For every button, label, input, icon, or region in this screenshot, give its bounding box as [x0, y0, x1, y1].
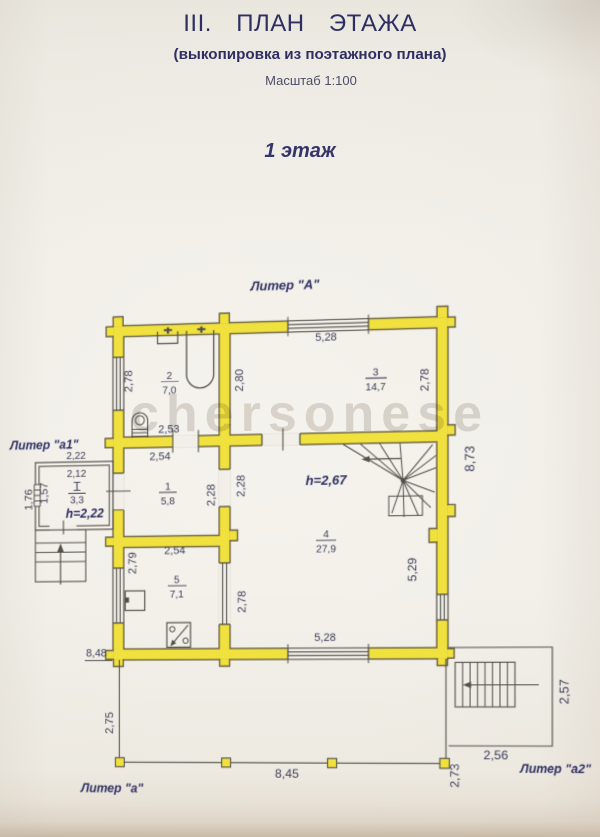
svg-text:5,28: 5,28	[315, 331, 337, 344]
svg-text:2,75: 2,75	[104, 712, 116, 734]
svg-text:8,73: 8,73	[463, 446, 478, 472]
svg-text:2,54: 2,54	[164, 545, 185, 558]
svg-text:2,79: 2,79	[127, 552, 139, 574]
svg-text:1,76: 1,76	[23, 489, 35, 510]
svg-text:2,28: 2,28	[235, 475, 247, 497]
svg-text:h=2,67: h=2,67	[306, 473, 348, 488]
svg-text:h=2,22: h=2,22	[66, 506, 104, 521]
svg-text:5,8: 5,8	[161, 496, 175, 508]
svg-text:8,45: 8,45	[275, 766, 299, 781]
svg-text:1,57: 1,57	[39, 483, 51, 504]
svg-text:2: 2	[166, 371, 172, 382]
svg-text:2,22: 2,22	[66, 451, 86, 463]
svg-text:2,57: 2,57	[557, 679, 572, 704]
svg-text:5,28: 5,28	[314, 632, 336, 645]
svg-text:27,9: 27,9	[316, 544, 337, 556]
svg-text:2,12: 2,12	[67, 469, 87, 481]
svg-text:8,48: 8,48	[86, 647, 107, 659]
svg-text:3,3: 3,3	[70, 495, 84, 506]
svg-text:2,78: 2,78	[236, 591, 248, 613]
svg-text:2,54: 2,54	[149, 450, 170, 463]
svg-text:Литер "А": Литер "А"	[250, 277, 321, 294]
svg-text:2,73: 2,73	[448, 764, 462, 788]
svg-text:Литер "а2": Литер "а2"	[519, 762, 591, 776]
svg-text:5: 5	[174, 575, 180, 586]
svg-text:1: 1	[165, 481, 171, 492]
svg-text:2,56: 2,56	[484, 748, 509, 763]
svg-text:Литер "а": Литер "а"	[80, 781, 144, 796]
svg-text:4: 4	[323, 529, 329, 541]
svg-text:5,29: 5,29	[406, 558, 420, 582]
svg-text:7,1: 7,1	[170, 589, 185, 600]
svg-text:3: 3	[373, 367, 379, 379]
svg-text:2,28: 2,28	[206, 484, 218, 506]
